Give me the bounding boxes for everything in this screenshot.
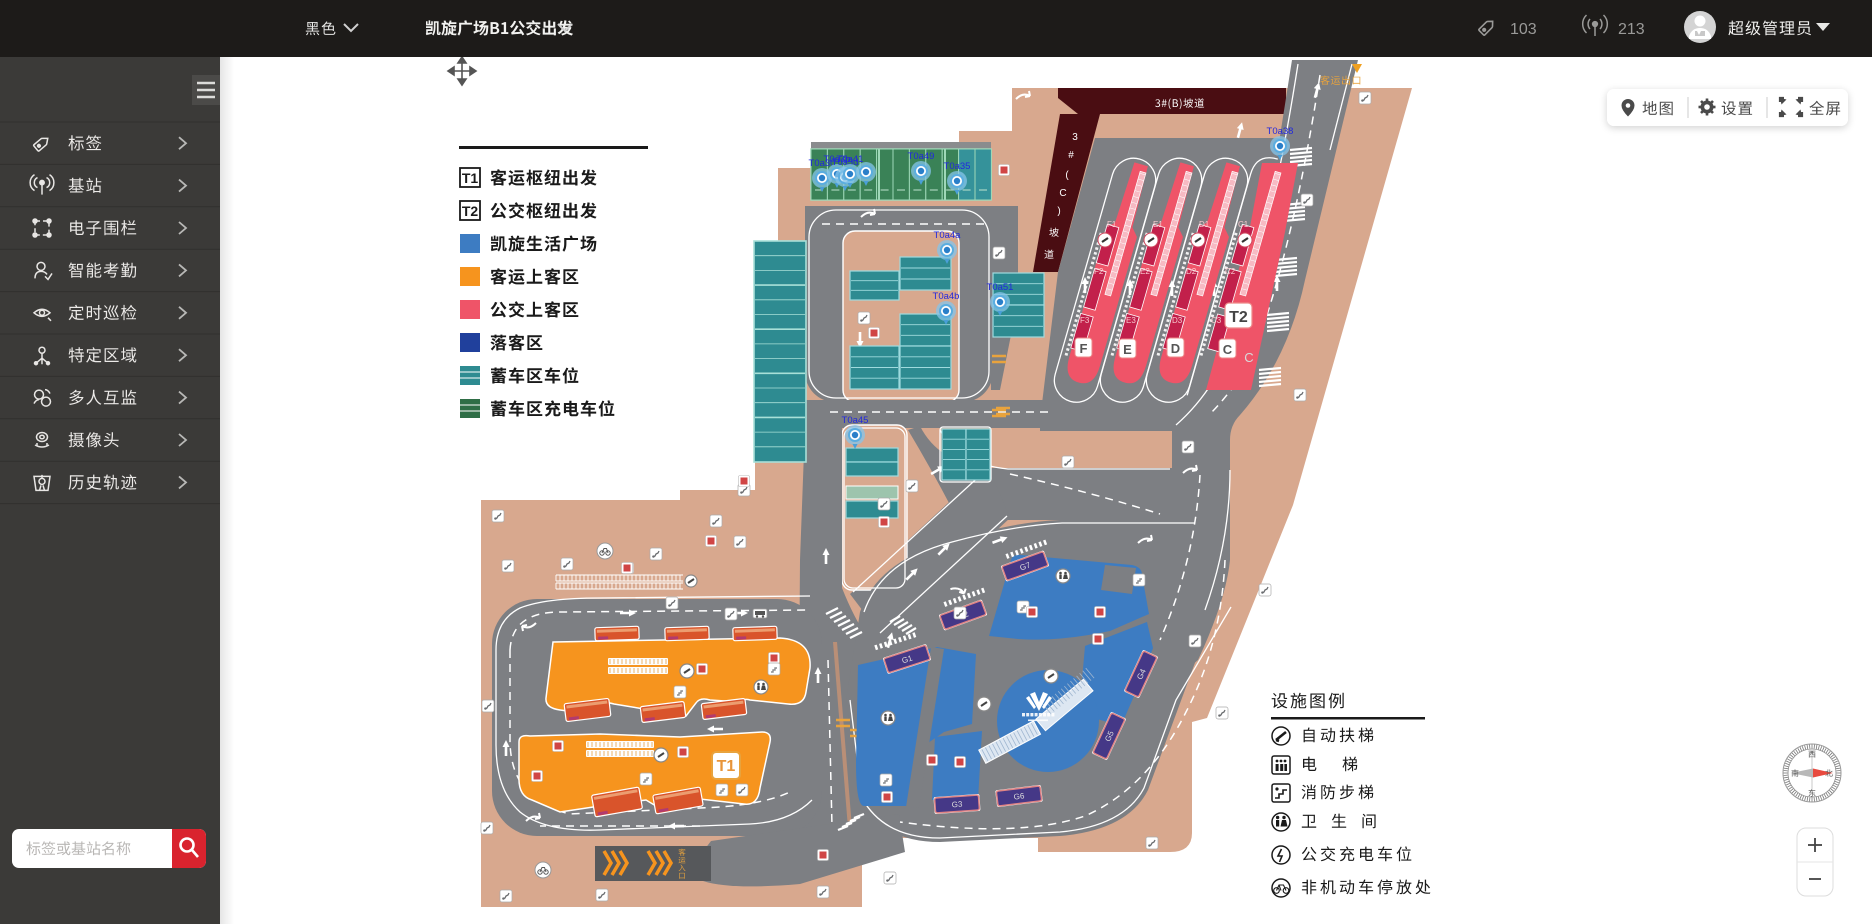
svg-text:T0a38: T0a38 — [1267, 126, 1294, 137]
svg-text:T0a51: T0a51 — [987, 282, 1014, 293]
svg-text:E1: E1 — [1153, 220, 1163, 229]
svg-text:T1: T1 — [462, 170, 479, 186]
svg-text:): ) — [1057, 206, 1060, 217]
svg-text:3: 3 — [1072, 132, 1078, 143]
svg-text:E: E — [1123, 342, 1132, 357]
svg-text:D1: D1 — [1199, 220, 1210, 229]
svg-text:F: F — [1080, 341, 1088, 356]
svg-text:C1: C1 — [1238, 220, 1249, 229]
svg-text:E2: E2 — [1140, 267, 1150, 276]
svg-text:T2: T2 — [462, 203, 479, 219]
svg-text:213: 213 — [1618, 21, 1645, 38]
svg-text:C3: C3 — [1211, 316, 1222, 325]
svg-text:G3: G3 — [951, 800, 963, 810]
svg-text:T0a45: T0a45 — [842, 415, 869, 426]
svg-text:#: # — [1068, 150, 1074, 161]
svg-text:T0a41: T0a41 — [837, 154, 864, 165]
svg-text:103: 103 — [1510, 21, 1537, 38]
svg-text:E3: E3 — [1126, 316, 1136, 325]
svg-text:F1: F1 — [1107, 220, 1117, 229]
svg-text:C: C — [1059, 188, 1066, 199]
svg-text:T0a4a: T0a4a — [934, 230, 962, 241]
svg-text:G6: G6 — [1013, 791, 1025, 801]
svg-text:D: D — [1171, 341, 1180, 356]
svg-text:F2: F2 — [1094, 267, 1104, 276]
svg-text:T0a49: T0a49 — [908, 151, 935, 162]
svg-text:T1: T1 — [717, 758, 736, 775]
svg-text:T2: T2 — [1229, 309, 1248, 326]
svg-text:T0a35: T0a35 — [944, 161, 971, 172]
svg-text:C: C — [1244, 350, 1253, 365]
svg-text:C2: C2 — [1225, 267, 1236, 276]
svg-text:C: C — [1223, 342, 1233, 357]
svg-text:T0a4b: T0a4b — [933, 291, 960, 302]
svg-text:D2: D2 — [1186, 267, 1197, 276]
svg-text:F3: F3 — [1080, 316, 1090, 325]
svg-text:D3: D3 — [1172, 316, 1183, 325]
